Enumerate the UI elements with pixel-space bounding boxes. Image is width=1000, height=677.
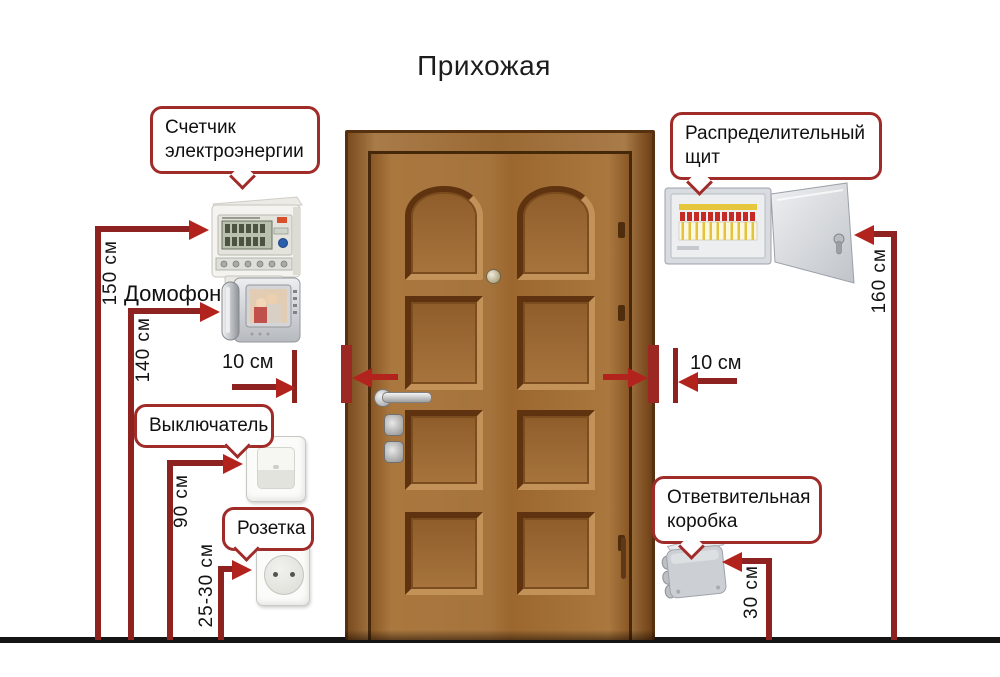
door-offset-right-arm [697,378,737,384]
door-panel [405,186,483,280]
intercom-label: Домофон [124,281,221,307]
measurement-intercom-height: 140 см [133,317,157,383]
socket-hole [290,572,295,577]
door-panel [405,512,483,595]
socket-hole [273,572,278,577]
measurement-switch-height: 90 см [171,474,195,528]
door-edge-right-arrow-icon [628,368,648,388]
door-edge-left-arrow-icon [352,368,372,388]
entrance-door [345,130,655,640]
junction-height-line [766,558,772,640]
callout-switch: Выключатель [134,404,274,448]
callout-junction: Ответвительная коробка [652,476,822,544]
door-edge-pull [621,537,626,579]
door-panel [517,186,595,280]
door-hinge [618,222,625,238]
door-lock-cylinder [384,414,404,436]
switch-indicator [273,465,279,469]
meter-height-line-arm [95,226,191,232]
distribution-board [663,178,859,294]
measurement-door-offset-left: 10 см [222,351,274,374]
door-panel [517,512,595,595]
door-edge-band-left [341,345,352,403]
door-center-knob [486,269,501,284]
measurement-socket-height: 25-30 см [196,543,220,627]
panel-arrow-icon [854,225,874,245]
power-socket [256,542,310,606]
door-panel [517,410,595,490]
door-bottom-shadow [345,630,655,640]
video-intercom [220,274,304,350]
socket-arrow-icon [232,560,252,580]
door-offset-right-arrow-icon [678,372,698,392]
intercom-height-line-arm [128,308,202,314]
junction-height-line-arm [742,558,772,564]
door-panel [405,296,483,390]
door-offset-left-arm [232,384,278,390]
page-title: Прихожая [384,50,584,82]
measurement-meter-height: 150 см [100,240,124,306]
door-edge-left-arrow-arm [371,374,398,380]
switch-height-line-arm [167,460,225,466]
door-handle [382,392,432,403]
door-edge-band-right [648,345,659,403]
door-offset-left-arrow-icon [276,378,296,398]
junction-arrow-icon [722,552,742,572]
door-lock-cylinder [384,441,404,463]
measurement-panel-height: 160 см [869,248,893,314]
callout-meter: Счетчик электроэнергии [150,106,320,174]
door-panel [405,410,483,490]
callout-panel: Распределительный щит [670,112,882,180]
switch-arrow-icon [223,454,243,474]
door-panel [517,296,595,390]
panel-height-line-arm [874,231,897,237]
measurement-junction-height: 30 см [741,565,765,619]
hallway-wiring-diagram: Прихожая 150 см 140 см 90 см 25-30 см 16… [0,0,1000,677]
socket-well [264,555,304,595]
door-edge-right-arrow-arm [603,374,629,380]
door-hinge [618,305,625,321]
meter-arrow-icon [189,220,209,240]
